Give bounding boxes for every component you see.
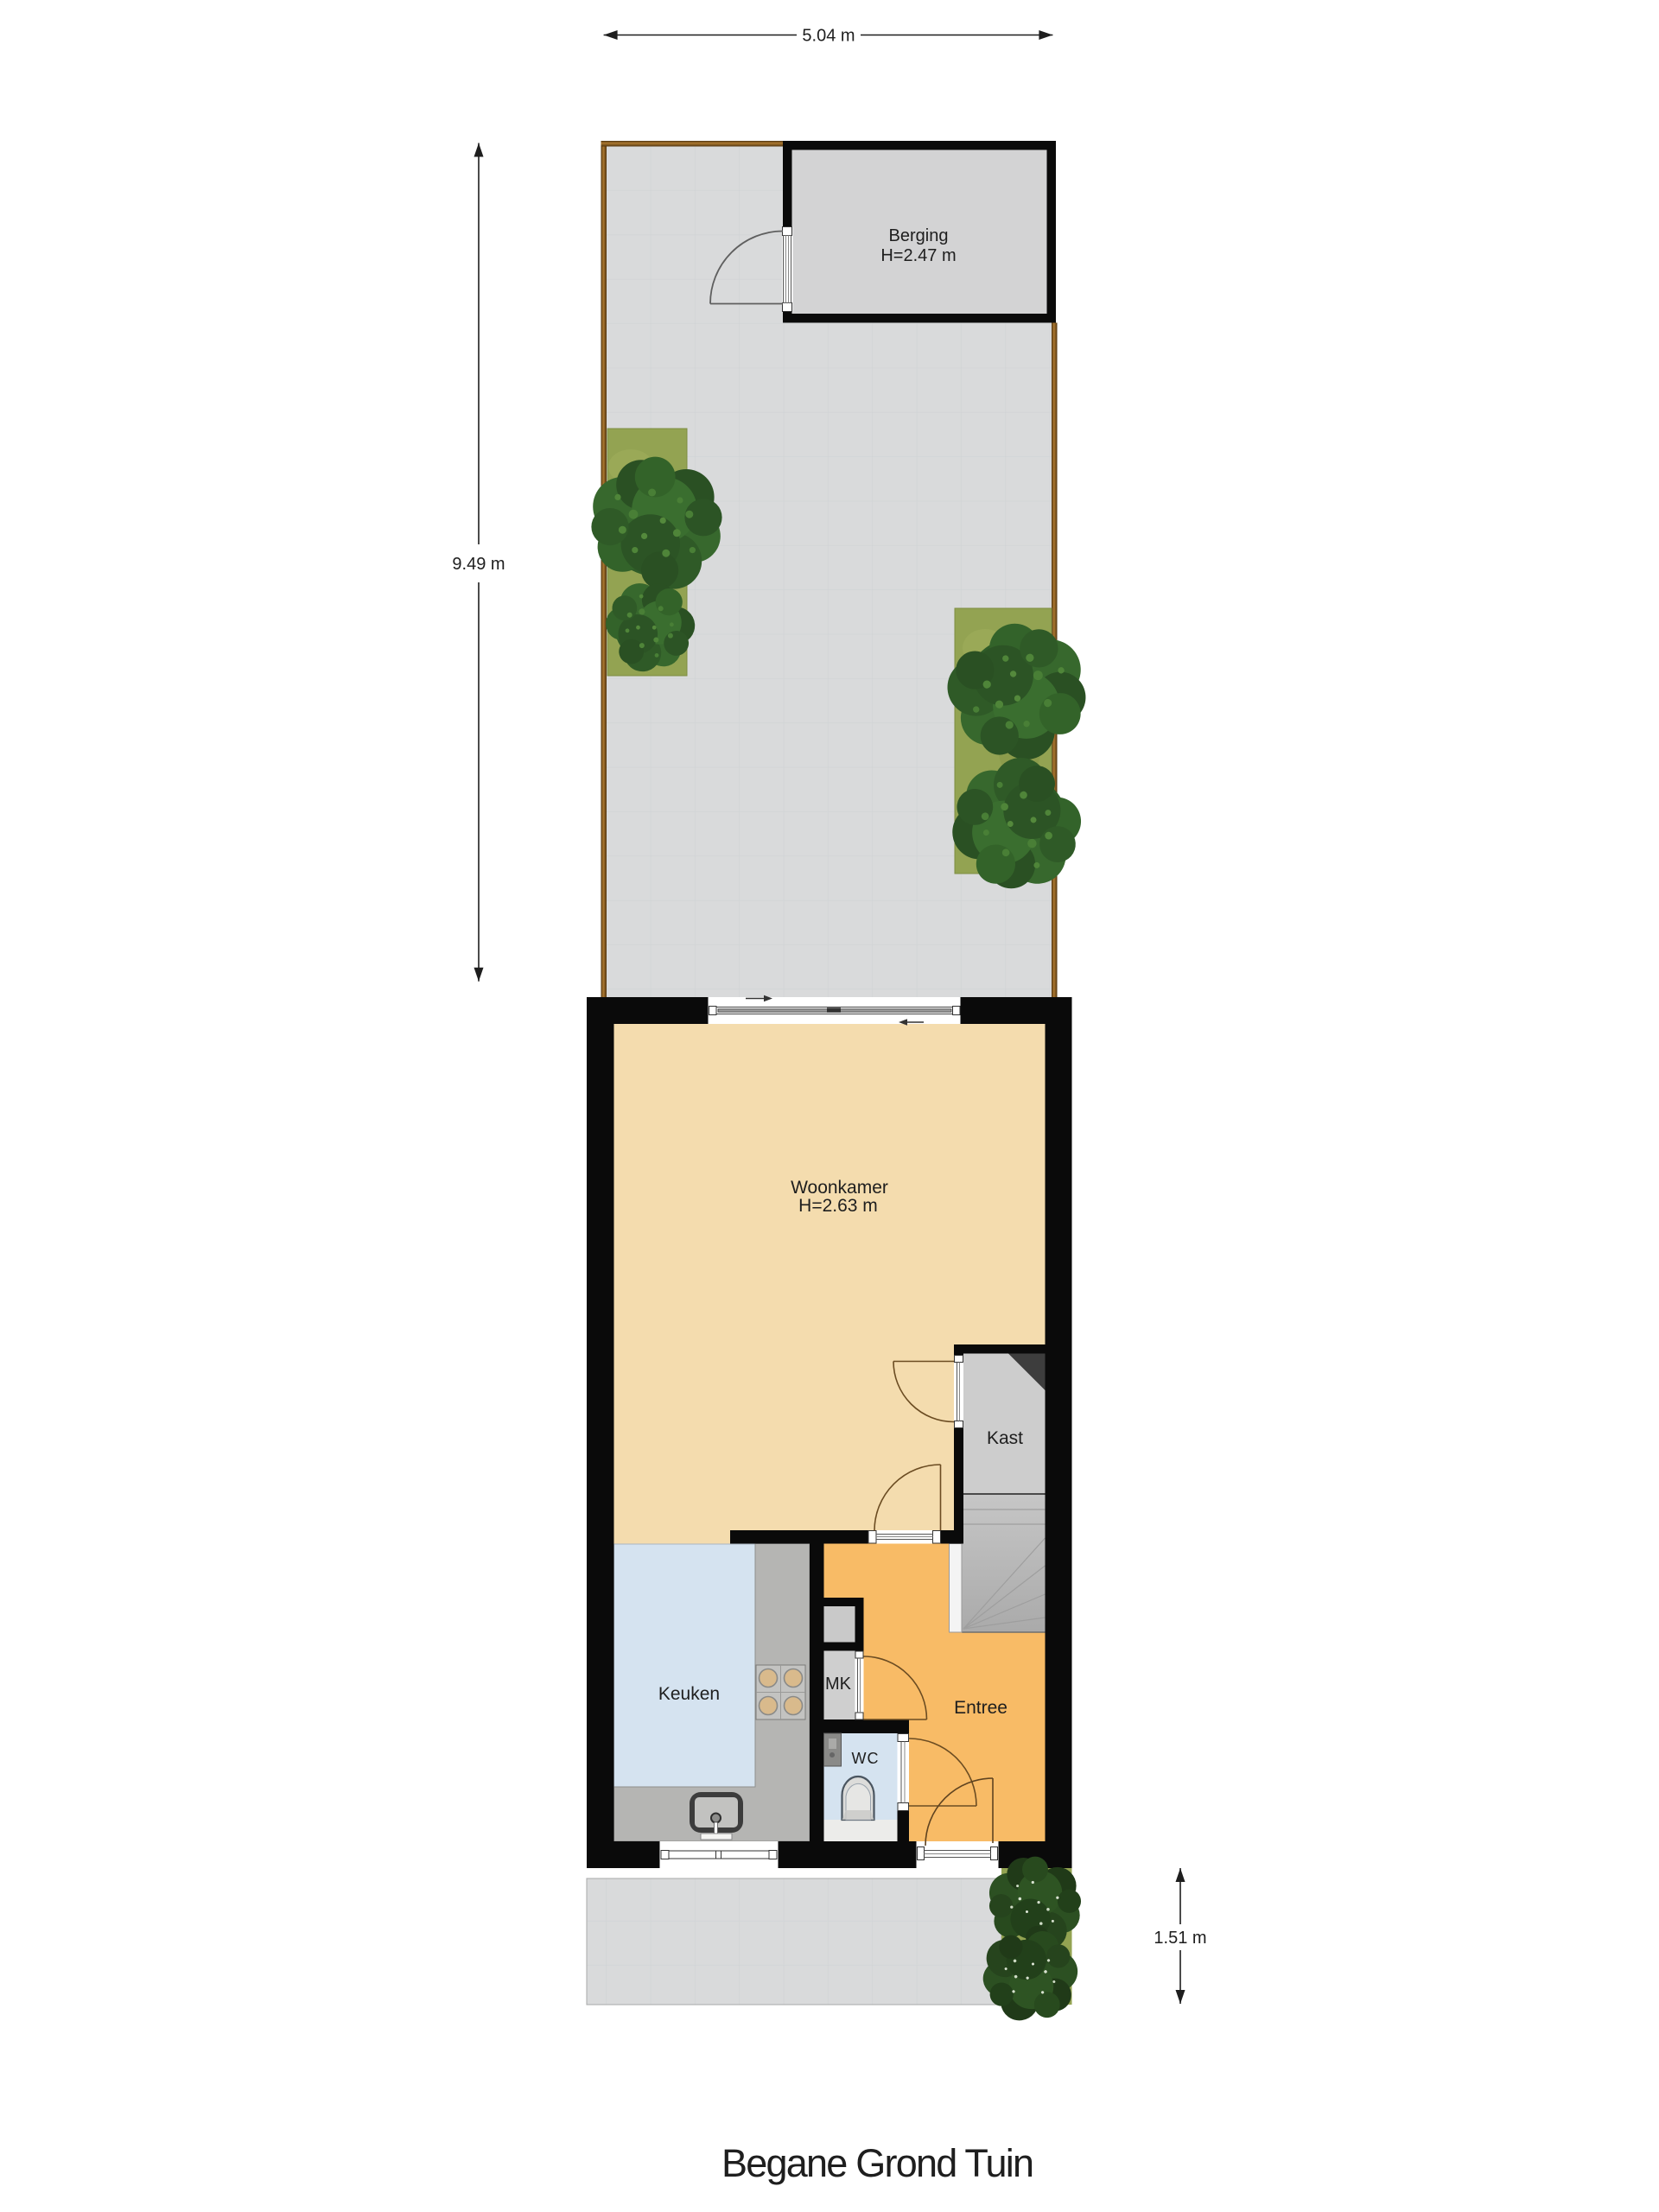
svg-text:5.04 m: 5.04 m: [802, 27, 855, 46]
svg-text:Begane Grond Tuin: Begane Grond Tuin: [721, 2141, 1034, 2185]
svg-text:Berging: Berging: [889, 226, 949, 245]
svg-text:Kast: Kast: [987, 1428, 1023, 1448]
svg-text:WC: WC: [852, 1750, 880, 1767]
svg-text:MK: MK: [825, 1675, 852, 1694]
svg-text:H=2.63 m: H=2.63 m: [798, 1196, 878, 1216]
svg-text:Keuken: Keuken: [658, 1684, 720, 1704]
svg-text:H=2.47 m: H=2.47 m: [880, 246, 956, 265]
svg-text:1.51 m: 1.51 m: [1154, 1929, 1206, 1948]
svg-text:Entree: Entree: [954, 1698, 1007, 1718]
svg-text:Woonkamer: Woonkamer: [791, 1178, 888, 1198]
svg-text:9.49 m: 9.49 m: [452, 555, 505, 574]
